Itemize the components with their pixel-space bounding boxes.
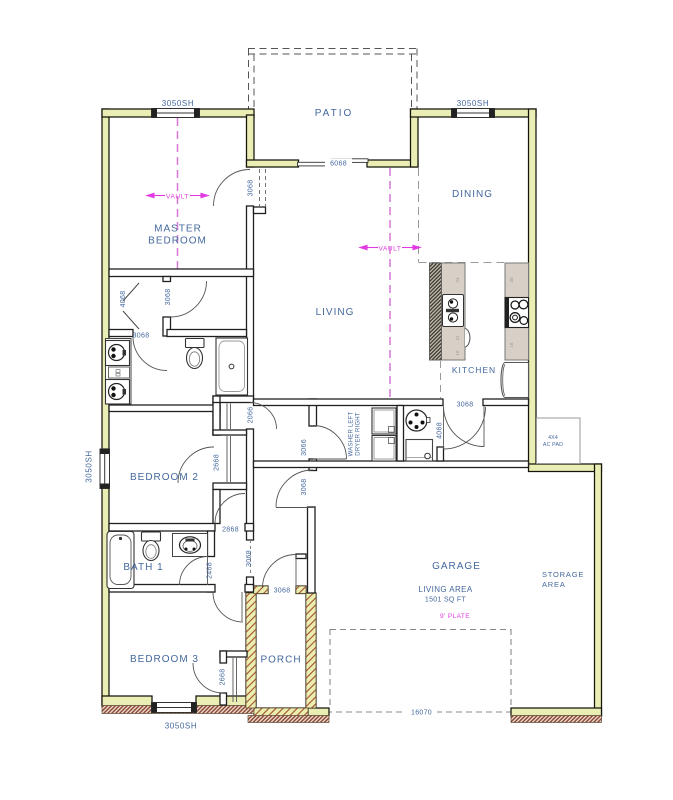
svg-text:LIVING: LIVING bbox=[316, 307, 355, 318]
svg-text:2668: 2668 bbox=[220, 669, 227, 686]
svg-text:BEDROOM 3: BEDROOM 3 bbox=[130, 654, 199, 665]
svg-text:BEDROOM: BEDROOM bbox=[148, 236, 207, 247]
svg-text:24: 24 bbox=[455, 277, 460, 283]
svg-text:3066: 3066 bbox=[301, 439, 308, 456]
svg-text:DRYER RIGHT: DRYER RIGHT bbox=[356, 412, 362, 456]
svg-text:6068: 6068 bbox=[330, 161, 347, 168]
svg-text:STORAGE: STORAGE bbox=[542, 570, 584, 579]
svg-text:3068: 3068 bbox=[274, 588, 291, 595]
svg-text:3068: 3068 bbox=[165, 289, 172, 306]
svg-text:3050SH: 3050SH bbox=[457, 99, 490, 108]
svg-text:30: 30 bbox=[509, 277, 514, 283]
svg-text:GARAGE: GARAGE bbox=[432, 561, 481, 572]
svg-text:2668: 2668 bbox=[214, 454, 221, 471]
svg-text:PORCH: PORCH bbox=[260, 655, 301, 666]
svg-text:2868: 2868 bbox=[222, 527, 239, 534]
svg-text:15: 15 bbox=[455, 350, 460, 356]
svg-text:KITCHEN: KITCHEN bbox=[452, 365, 496, 375]
svg-text:4X4: 4X4 bbox=[548, 435, 558, 441]
svg-text:18: 18 bbox=[509, 342, 514, 348]
svg-text:MASTER: MASTER bbox=[154, 224, 202, 235]
svg-text:4068: 4068 bbox=[120, 291, 127, 308]
svg-text:3068: 3068 bbox=[248, 180, 255, 197]
svg-text:4068: 4068 bbox=[437, 422, 444, 439]
svg-text:PATIO: PATIO bbox=[315, 108, 354, 119]
svg-text:3068: 3068 bbox=[133, 333, 150, 340]
svg-text:3068: 3068 bbox=[246, 550, 253, 567]
svg-text:2066: 2066 bbox=[248, 407, 255, 424]
svg-text:9' PLATE: 9' PLATE bbox=[440, 613, 470, 620]
svg-text:WASHER LEFT: WASHER LEFT bbox=[349, 412, 355, 457]
svg-text:LIVING AREA: LIVING AREA bbox=[418, 585, 472, 594]
svg-text:VAULT: VAULT bbox=[379, 246, 402, 253]
svg-text:3050SH: 3050SH bbox=[165, 722, 198, 731]
svg-text:3050SH: 3050SH bbox=[85, 450, 94, 483]
svg-text:3068: 3068 bbox=[301, 479, 308, 496]
svg-text:DINING: DINING bbox=[452, 189, 493, 200]
svg-text:BEDROOM 2: BEDROOM 2 bbox=[130, 472, 199, 483]
svg-text:3068: 3068 bbox=[457, 402, 474, 409]
svg-text:AREA: AREA bbox=[542, 580, 566, 589]
svg-text:2468: 2468 bbox=[207, 562, 214, 579]
svg-text:1501 SQ FT: 1501 SQ FT bbox=[425, 597, 467, 604]
svg-text:21: 21 bbox=[455, 335, 460, 341]
svg-text:AC PAD: AC PAD bbox=[543, 442, 563, 448]
svg-text:BATH 1: BATH 1 bbox=[123, 562, 163, 573]
svg-text:16070: 16070 bbox=[411, 710, 432, 717]
svg-text:VAULT: VAULT bbox=[166, 194, 189, 201]
svg-text:3050SH: 3050SH bbox=[162, 99, 195, 108]
